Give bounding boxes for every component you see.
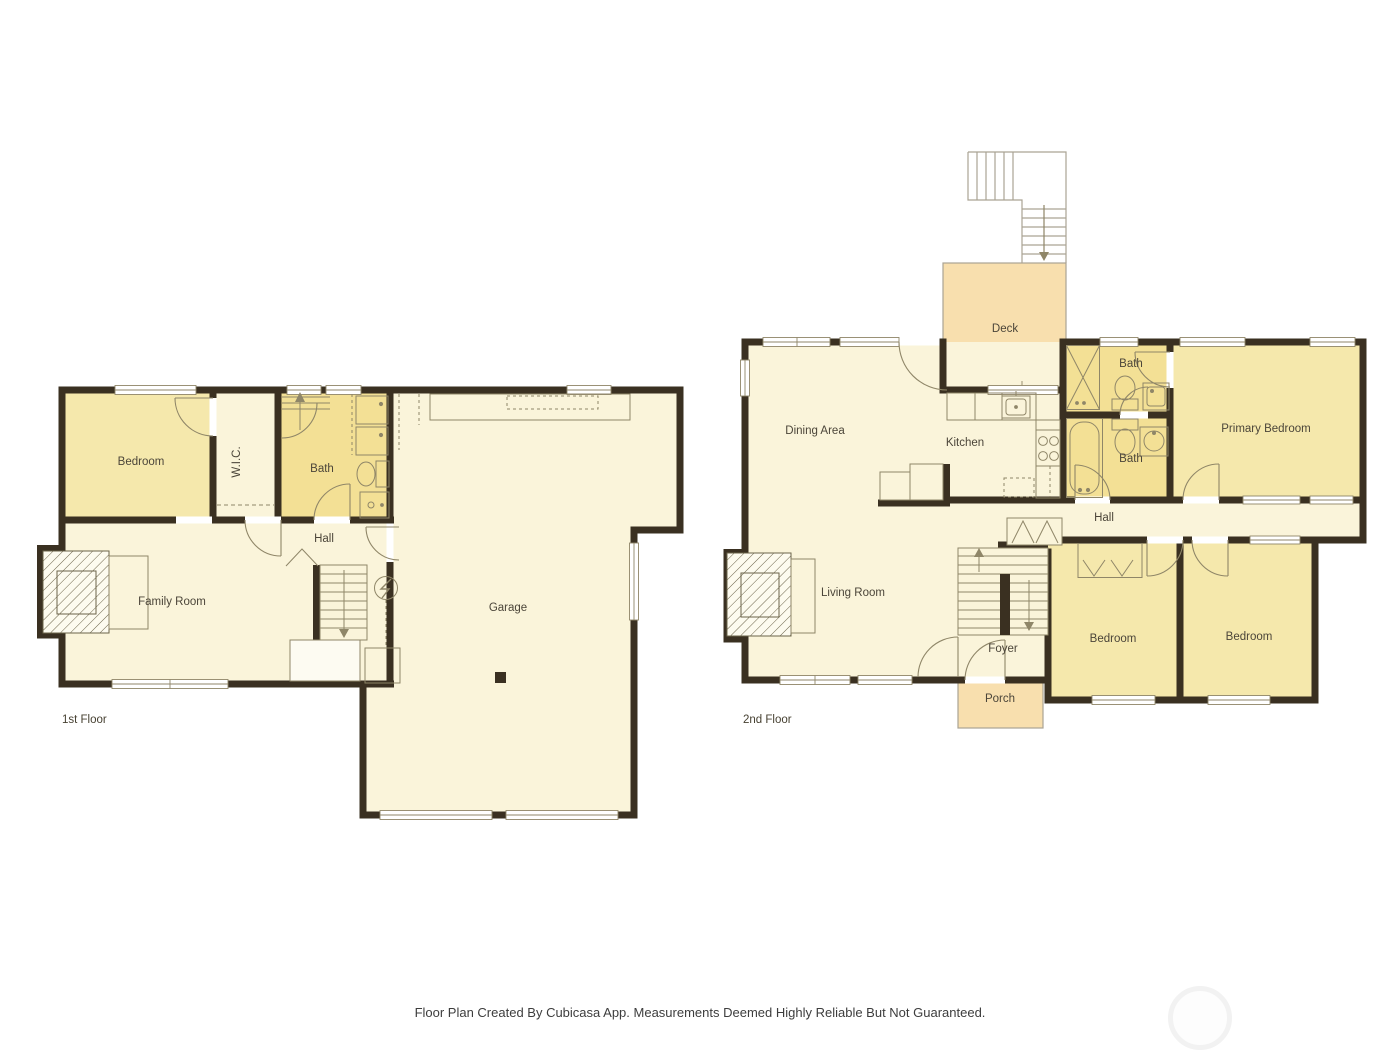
room-wic [213,387,278,520]
label-garage: Garage [489,602,527,614]
label-bath-lower: Bath [1119,453,1143,465]
label-bath-upper: Bath [1119,358,1143,370]
label-foyer: Foyer [988,643,1018,655]
label-bedroom-right: Bedroom [1226,631,1273,643]
fireplace-1f [43,551,148,633]
room-bedroom-1f [62,387,213,520]
room-bath-1f [278,387,390,520]
floor-plan-canvas: Bedroom W.I.C. Bath Hall Family Room Gar… [0,0,1400,1050]
deck-stairs [968,152,1066,263]
watermark-circle [1168,986,1232,1050]
label-second-floor: 2nd Floor [743,714,792,726]
room-bedroom-right [1180,540,1315,700]
label-first-floor: 1st Floor [62,714,107,726]
fireplace-2f [727,553,815,636]
second-floor-plan: Deck Dining Area Kitchen Bath Bath Prima… [724,152,1367,728]
label-hall-2f: Hall [1094,512,1114,524]
label-bedroom-1f: Bedroom [118,456,165,468]
label-porch: Porch [985,693,1015,705]
room-primary-bedroom [1170,342,1363,500]
foyer-stairs [958,548,1048,635]
label-bedroom-mid: Bedroom [1090,633,1137,645]
label-dining-area: Dining Area [785,425,845,437]
first-floor-plan: Bedroom W.I.C. Bath Hall Family Room Gar… [37,386,684,820]
floor-plan-page: Bedroom W.I.C. Bath Hall Family Room Gar… [0,0,1400,1050]
label-primary-bedroom: Primary Bedroom [1221,423,1310,435]
label-kitchen: Kitchen [946,437,984,449]
second-floor-rooms [745,263,1366,728]
label-family-room: Family Room [138,596,206,608]
hall-closet [1007,518,1062,545]
label-living-room: Living Room [821,587,885,599]
label-wic: W.I.C. [231,446,243,477]
garage-post [495,672,506,683]
label-bath-1f: Bath [310,463,334,475]
deck-stairs-arrow [1039,252,1049,261]
room-baths-2f [1063,342,1173,500]
label-deck: Deck [992,323,1018,335]
label-hall-1f: Hall [314,533,334,545]
